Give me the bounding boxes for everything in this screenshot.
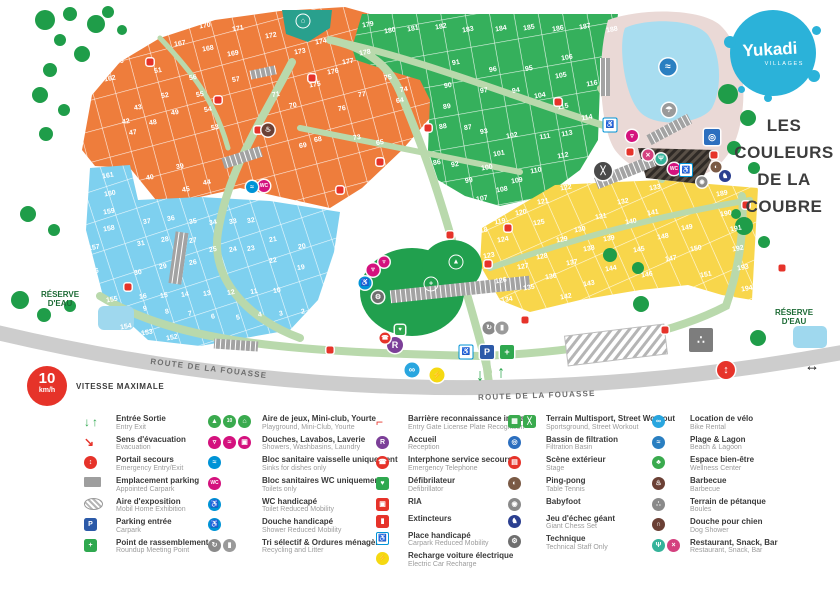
aire-de-jeux-text: Aire de jeux, Mini-club, YourtePlaygroun… (262, 414, 376, 432)
accueil-icon: R (376, 435, 402, 449)
defibrilateur-text: DéfibrilateurDefibrillator (408, 476, 455, 494)
scene-exterieur-icon: ▤ (508, 455, 540, 469)
ria-title: RIA (408, 497, 422, 507)
legend-item-defibrilateur: ♥DéfibrilateurDefibrillator (376, 476, 527, 494)
legend-item-wc-handicape: ♿WC handicapéToilet Reduced Mobility (208, 497, 398, 515)
scene-exterieur-text: Scène extérieurStage (546, 455, 606, 473)
exit-arrow-icon: ↑ (497, 364, 506, 381)
douche-chien-title: Douche pour chien (690, 517, 762, 527)
barriere-immat-icon: ⌐ (376, 414, 402, 428)
plot-number-green: 182 (435, 23, 448, 32)
reserve-eau-label-left: RÉSERVE D'EAU (34, 290, 86, 308)
plot-number-blue: 27 (189, 237, 198, 245)
terrain-petanque-icon: ∴ (652, 497, 684, 511)
reduced-mobility-icon: ♿ (603, 118, 618, 133)
location-velo-subtitle: Bike Rental (690, 424, 753, 432)
plot-number-blue: 9 (142, 305, 147, 313)
plot-number-green: 187 (579, 23, 592, 32)
fire-extinguisher-marker (447, 232, 454, 239)
plot-number-green: 95 (525, 65, 534, 73)
legend-item-ria: ▣RIA (376, 497, 527, 511)
dishes-sink-icon: ≈ (246, 181, 258, 193)
parking-entree-glyph: P (84, 518, 97, 531)
aire-de-jeux-glyph: ⌂ (238, 415, 251, 428)
ria-text: RIA (408, 497, 422, 507)
plot-number-yellow: 191 (730, 225, 743, 234)
plot-number-blue: 12 (227, 289, 236, 297)
bassin-filtration-icon: ◎ (508, 435, 540, 449)
logo-subtitle: VILLAGES (724, 61, 804, 67)
plot-number-orange: 40 (146, 174, 155, 182)
parking-entree-text: Parking entréeCarpark (116, 517, 172, 535)
fire-extinguisher-marker (627, 149, 634, 156)
plage-lagon-text: Plage & LagonBeach & Lagoon (690, 435, 746, 453)
ria-glyph: ▣ (376, 498, 389, 511)
fire-extinguisher-marker (555, 99, 562, 106)
plot-number-blue: 34 (209, 219, 218, 227)
speed-unit: km/h (27, 387, 67, 395)
plot-number-yellow: 139 (603, 235, 616, 244)
plot-number-green: 105 (555, 72, 568, 81)
plot-number-green: 116 (586, 80, 598, 89)
portail-secours-subtitle: Emergency Entry/Exit (116, 465, 183, 473)
legend-item-location-velo: ∞Location de véloBike Rental (652, 414, 778, 432)
legend-item-babyfoot: ◉Babyfoot (508, 497, 675, 511)
accueil-text: AccueilReception (408, 435, 440, 453)
emplacement-parking-subtitle: Appointed Carpark (116, 486, 199, 494)
plot-number-blue: 16 (139, 293, 148, 301)
filtration-basin-icon: ◎ (704, 129, 720, 145)
douches-lavabos-laverie-glyph: ▣ (238, 436, 251, 449)
plot-number-orange: 52 (161, 92, 170, 100)
plot-number-green: 188 (606, 26, 619, 35)
plot-number-blue: 20 (298, 243, 307, 251)
map-title-line: DE LA (730, 166, 838, 193)
legend-item-portail-secours: ↕Portail secoursEmergency Entry/Exit (84, 455, 208, 473)
plot-number-green: 101 (493, 150, 506, 159)
legend-item-espace-bien-etre: ♣Espace bien-êtreWellness Center (652, 455, 778, 473)
plot-number-orange: 167 (174, 40, 187, 49)
aire-exposition-glyph (84, 498, 103, 510)
barbecue-icon: ♨ (262, 124, 275, 137)
plot-number-orange: 51 (154, 67, 163, 75)
wc-handicape-title: WC handicapé (262, 497, 334, 507)
plot-number-blue: 19 (297, 264, 306, 272)
ping-pong-text: Ping-pongTable Tennis (546, 476, 586, 494)
carpark-entrance-icon: P (480, 345, 494, 359)
plot-number-orange: 71 (272, 91, 281, 99)
technical-icon: ⚙ (372, 291, 384, 303)
plot-number-orange: 75 (384, 74, 393, 82)
legend-item-accueil: RAccueilReception (376, 435, 527, 453)
jeu-echec-geant-text: Jeu d'échec géantGiant Chess Set (546, 514, 615, 532)
interphone-secours-icon: ☎ (376, 455, 402, 469)
plot-number-orange: 178 (359, 49, 372, 58)
babyfoot-title: Babyfoot (546, 497, 581, 507)
plot-number-blue: 1 (322, 306, 327, 314)
tri-selectif-title: Tri sélectif & Ordures ménagères (262, 538, 387, 548)
portail-secours-icon: ↕ (84, 455, 110, 469)
restaurant-icon: Ψ (656, 154, 667, 165)
plot-number-yellow: 193 (737, 264, 750, 273)
aire-de-jeux-icon: ▲10⌂ (208, 414, 256, 428)
terrain-petanque-text: Terrain de pétanqueBoules (690, 497, 766, 515)
plot-number-blue: 10 (273, 287, 282, 295)
extincteurs-glyph: ▮ (376, 515, 389, 528)
plot-number-orange: 168 (202, 45, 215, 54)
terrain-multisport-glyph: ▦ (508, 415, 521, 428)
restaurant-snack-bar-icon: Ψ× (652, 538, 684, 552)
plot-number-orange: 177 (342, 58, 355, 67)
legend-column-3: ⌐Barrière reconnaissance immatEntry Gate… (376, 414, 527, 569)
defibrilateur-glyph: ♥ (376, 477, 389, 490)
entree-sortie-icon: ↓↑ (84, 414, 110, 428)
parking-entree-subtitle: Carpark (116, 527, 172, 535)
legend-item-point-rassemblement: +Point de rassemblementRoundup Meeting P… (84, 538, 208, 556)
ev-charge-icon: ⚡ (430, 368, 445, 383)
restaurant-snack-bar-title: Restaurant, Snack, Bar (690, 538, 778, 548)
legend-item-restaurant-snack-bar: Ψ×Restaurant, Snack, BarRestaurant, Snac… (652, 538, 778, 556)
location-velo-glyph: ∞ (652, 415, 665, 428)
fire-extinguisher-marker (125, 284, 132, 291)
plot-number-orange: 44 (203, 179, 212, 187)
espace-bien-etre-title: Espace bien-être (690, 455, 754, 465)
plot-number-green: 180 (384, 27, 397, 36)
legend-item-entree-sortie: ↓↑Entrée SortieEntry Exit (84, 414, 208, 432)
two-way-arrow-icon: ↔ (805, 359, 820, 374)
wc-handicape-icon: ♿ (208, 497, 256, 511)
plot-number-orange: 162 (104, 75, 117, 84)
legend-item-aire-exposition: Aire d'expositionMobil Home Exhibition (84, 497, 208, 515)
plot-number-green: 88 (439, 123, 448, 131)
plot-number-green: 181 (407, 25, 420, 34)
emplacement-parking-glyph (84, 477, 101, 487)
plot-number-blue: 154 (120, 323, 133, 332)
point-rassemblement-glyph: + (84, 539, 97, 552)
aire-exposition-title: Aire d'exposition (116, 497, 186, 507)
plot-number-blue: 7 (187, 310, 192, 318)
ping-pong-icon: ◐ (711, 162, 722, 173)
plot-number-blue: 11 (250, 288, 259, 296)
douche-chien-text: Douche pour chienDog Shower (690, 517, 762, 535)
plot-number-orange: 57 (232, 76, 241, 84)
showers-icon: ▿ (626, 130, 638, 142)
plot-number-orange: 42 (122, 118, 131, 126)
legend-column-5: ∞Location de véloBike Rental≈Plage & Lag… (652, 414, 778, 555)
ping-pong-title: Ping-pong (546, 476, 586, 486)
plot-number-orange: 169 (227, 50, 240, 59)
bloc-wc-subtitle: Toilets only (262, 486, 382, 494)
scene-exterieur-title: Scène extérieur (546, 455, 606, 465)
technique-text: TechniqueTechnical Staff Only (546, 534, 608, 552)
aire-exposition-text: Aire d'expositionMobil Home Exhibition (116, 497, 186, 515)
legend-item-bassin-filtration: ◎Bassin de filtrationFiltration Basin (508, 435, 675, 453)
legend-column-1: ↓↑Entrée SortieEntry Exit↘Sens d'évacuat… (84, 414, 208, 555)
aire-de-jeux-glyph: ▲ (208, 415, 221, 428)
bloc-vaisselle-icon: ≈ (208, 455, 256, 469)
babyfoot-glyph: ◉ (508, 498, 521, 511)
legend-item-barbecue: ♨BarbecueBarbecue (652, 476, 778, 494)
interphone-secours-text: Interphone service secoursEmergency Tele… (408, 455, 512, 473)
place-handicape-title: Place handicapé (408, 531, 489, 541)
plot-number-yellow: 144 (605, 265, 618, 274)
entree-sortie-glyph: ↑ (92, 415, 98, 428)
fire-extinguisher-marker (309, 75, 316, 82)
douche-chien-subtitle: Dog Shower (690, 527, 762, 535)
plot-number-orange: 173 (294, 48, 307, 57)
portail-secours-glyph: ↕ (84, 456, 97, 469)
plot-number-blue: 26 (189, 259, 198, 267)
logo-splat (738, 86, 745, 93)
barbecue-icon: ♨ (652, 476, 684, 490)
plot-number-yellow: 145 (633, 246, 646, 255)
portail-secours-title: Portail secours (116, 455, 183, 465)
location-velo-icon: ∞ (652, 414, 684, 428)
aire-de-jeux-subtitle: Playground, Mini-Club, Yourte (262, 424, 376, 432)
plot-number-yellow: 134 (501, 296, 514, 305)
plot-number-yellow: 150 (690, 245, 703, 254)
plot-number-yellow: 141 (647, 209, 660, 218)
legend-item-interphone-secours: ☎Interphone service secoursEmergency Tel… (376, 455, 527, 473)
plot-number-green: 109 (511, 177, 524, 186)
place-handicape-text: Place handicapéCarpark Reduced Mobility (408, 531, 489, 549)
plot-number-yellow: 194 (741, 285, 754, 294)
place-handicape-glyph: ♿ (376, 532, 389, 545)
plot-number-green: 91 (452, 59, 461, 67)
scene-exterieur-subtitle: Stage (546, 465, 606, 473)
plot-number-green: 179 (362, 21, 375, 30)
plot-number-yellow: 121 (537, 198, 550, 207)
fire-extinguisher-marker (255, 127, 262, 134)
plot-number-yellow: 132 (617, 198, 630, 207)
plot-number-green: 97 (480, 87, 489, 95)
plot-number-orange: 166 (167, 19, 180, 28)
ping-pong-glyph: ◐ (508, 477, 521, 490)
litter-icon: ▮ (496, 322, 509, 335)
sens-evacuation-title: Sens d'évacuation (116, 435, 186, 445)
fire-extinguisher-marker (377, 159, 384, 166)
plot-number-yellow: 149 (681, 224, 694, 233)
restaurant-snack-bar-subtitle: Restaurant, Snack, Bar (690, 547, 778, 555)
place-handicape-subtitle: Carpark Reduced Mobility (408, 540, 489, 548)
plot-number-yellow: 136 (545, 273, 558, 282)
terrain-petanque-title: Terrain de pétanque (690, 497, 766, 507)
plot-number-green: 104 (534, 92, 547, 101)
emergency-gate-icon: ↕ (717, 361, 735, 379)
plot-number-orange: 164 (119, 41, 132, 50)
sens-evacuation-subtitle: Evacuation (116, 444, 186, 452)
plage-lagon-subtitle: Beach & Lagoon (690, 444, 746, 452)
plot-number-orange: 69 (299, 142, 308, 150)
espace-bien-etre-glyph: ♣ (652, 456, 665, 469)
plot-number-blue: 6 (210, 313, 215, 321)
plot-number-green: 113 (561, 130, 573, 139)
plot-number-blue: 31 (137, 240, 146, 248)
emplacement-parking-title: Emplacement parking (116, 476, 199, 486)
plot-number-blue: 24 (229, 246, 238, 254)
plot-number-blue: 32 (247, 217, 256, 225)
showers-icon: ▿ (367, 264, 380, 277)
babyfoot-icon: ◉ (697, 177, 708, 188)
plot-number-orange: 73 (353, 134, 362, 142)
plot-number-orange: 53 (211, 124, 220, 132)
scene-exterieur-glyph: ▤ (508, 456, 521, 469)
sens-evacuation-text: Sens d'évacuationEvacuation (116, 435, 186, 453)
plot-number-orange: 48 (149, 119, 158, 127)
bloc-wc-glyph: WC (208, 477, 221, 490)
legend-item-douche-handicape: ♿Douche handicapéShower Reduced Mobility (208, 517, 398, 535)
douche-chien-icon: ∩ (652, 517, 684, 531)
sanitary-wc-icon: WC (258, 180, 270, 192)
plot-number-green: 111 (539, 133, 551, 142)
babyfoot-text: Babyfoot (546, 497, 581, 507)
fire-extinguisher-marker (147, 59, 154, 66)
map-title-line: COUBRE (730, 193, 838, 220)
plot-number-yellow: 131 (595, 213, 608, 222)
plot-number-orange: 170 (199, 22, 212, 31)
douches-lavabos-laverie-icon: ▿≈▣ (208, 435, 256, 449)
barbecue-glyph: ♨ (652, 477, 665, 490)
meeting-point-icon: + (500, 345, 514, 359)
douches-lavabos-laverie-glyph: ▿ (208, 436, 221, 449)
technique-icon: ⚙ (508, 534, 540, 548)
map-title: LESCOULEURSDE LACOUBRE (730, 112, 838, 220)
plot-number-yellow: 138 (583, 245, 596, 254)
plot-number-orange: 174 (315, 38, 328, 47)
legend-item-sens-evacuation: ↘Sens d'évacuationEvacuation (84, 435, 208, 453)
plot-number-yellow: 137 (566, 259, 579, 268)
legend-item-extincteurs: ▮Extincteurs (376, 514, 527, 528)
plot-number-orange: 171 (232, 25, 245, 34)
plot-number-yellow: 151 (700, 271, 713, 280)
plot-number-blue: 159 (103, 208, 116, 217)
emplacement-parking-text: Emplacement parkingAppointed Carpark (116, 476, 199, 494)
plot-number-green: 102 (506, 132, 519, 141)
point-rassemblement-text: Point de rassemblementRoundup Meeting Po… (116, 538, 208, 556)
plot-number-green: 94 (512, 87, 521, 95)
legend-item-aire-de-jeux: ▲10⌂Aire de jeux, Mini-club, YourtePlayg… (208, 414, 398, 432)
tri-selectif-glyph: ▮ (223, 539, 236, 552)
plot-number-yellow: 122 (560, 184, 573, 193)
playground-icon: ▲ (449, 255, 464, 270)
plot-number-orange: 55 (196, 91, 205, 99)
defibrilateur-subtitle: Defibrillator (408, 486, 455, 494)
legend-item-plage-lagon: ≈Plage & LagonBeach & Lagoon (652, 435, 778, 453)
speed-value: 10 (27, 371, 67, 387)
terrain-petanque-subtitle: Boules (690, 506, 766, 514)
ping-pong-subtitle: Table Tennis (546, 486, 586, 494)
plot-number-green: 86 (433, 159, 442, 167)
espace-bien-etre-subtitle: Wellness Center (690, 465, 754, 473)
plot-number-green: 114 (581, 114, 593, 123)
plot-number-orange: 54 (204, 106, 213, 114)
legend: ↓↑Entrée SortieEntry Exit↘Sens d'évacuat… (0, 408, 840, 594)
legend-item-place-handicape: ♿Place handicapéCarpark Reduced Mobility (376, 531, 527, 549)
recharge-electrique-glyph: ⚡ (376, 552, 389, 565)
legend-item-emplacement-parking: Emplacement parkingAppointed Carpark (84, 476, 208, 494)
plot-number-green: 93 (480, 128, 489, 136)
plage-lagon-icon: ≈ (652, 435, 684, 449)
plot-number-yellow: 120 (515, 209, 528, 218)
terrain-multisport-glyph: ╳ (523, 415, 536, 428)
legend-item-bloc-vaisselle: ≈Bloc sanitaire vaisselle uniquementSink… (208, 455, 398, 473)
sens-evacuation-icon: ↘ (84, 435, 110, 449)
recharge-electrique-title: Recharge voiture électrique (408, 551, 513, 561)
snack-bar-icon: × (643, 150, 654, 161)
fire-extinguisher-marker (425, 125, 432, 132)
fire-extinguisher-marker (485, 261, 492, 268)
plot-number-blue: 14 (181, 291, 190, 299)
plot-number-blue: 152 (166, 334, 179, 343)
location-velo-title: Location de vélo (690, 414, 753, 424)
plot-number-yellow: 124 (497, 236, 510, 245)
plot-number-green: 112 (557, 152, 569, 161)
plot-number-green: 96 (489, 66, 498, 74)
plot-number-yellow: 146 (641, 271, 654, 280)
plot-number-orange: 65 (376, 139, 385, 147)
logo-splat (764, 94, 772, 102)
defibrilateur-title: Défibrilateur (408, 476, 455, 486)
plot-number-orange: 76 (338, 105, 347, 113)
bloc-wc-icon: WC (208, 476, 256, 490)
plot-number-blue: 21 (269, 236, 278, 244)
legend-item-jeu-echec-geant: ♞Jeu d'échec géantGiant Chess Set (508, 514, 675, 532)
plot-number-yellow: 140 (625, 218, 638, 227)
plot-number-blue: 5 (235, 314, 240, 322)
carpark-reduced-mobility-icon: ♿ (459, 345, 474, 360)
place-handicape-icon: ♿ (376, 531, 402, 545)
aire-exposition-icon (84, 497, 110, 510)
plot-number-green: 185 (523, 24, 536, 33)
plot-number-yellow: 129 (556, 236, 569, 245)
jeu-echec-geant-icon: ♞ (508, 514, 540, 528)
street-workout-icon: ╳ (594, 162, 612, 180)
yukadi-logo: Yukadi VILLAGES (724, 6, 824, 111)
plot-number-orange: 176 (327, 68, 340, 77)
plot-number-blue: 4 (257, 311, 262, 319)
plot-number-orange: 70 (289, 102, 298, 110)
plage-lagon-glyph: ≈ (652, 436, 665, 449)
plot-number-blue: 22 (269, 257, 278, 265)
fire-extinguisher-marker (522, 317, 529, 324)
plot-number-yellow: 118 (476, 227, 488, 236)
recharge-electrique-subtitle: Electric Car Recharge (408, 561, 513, 569)
plot-number-blue: 13 (203, 290, 212, 298)
fire-extinguisher-marker (337, 187, 344, 194)
technique-glyph: ⚙ (508, 535, 521, 548)
aire-de-jeux-glyph: 10 (223, 415, 236, 428)
douche-handicape-glyph: ♿ (208, 518, 221, 531)
plot-number-green: 107 (476, 195, 489, 204)
sens-evacuation-glyph: ↘ (84, 436, 94, 449)
point-rassemblement-title: Point de rassemblement (116, 538, 208, 548)
interphone-secours-glyph: ☎ (376, 456, 389, 469)
plot-number-blue: 156 (87, 268, 100, 277)
barbecue-title: Barbecue (690, 476, 726, 486)
emergency-telephone-icon: ☎ (380, 333, 391, 344)
bassin-filtration-text: Bassin de filtrationFiltration Basin (546, 435, 618, 453)
plage-lagon-title: Plage & Lagon (690, 435, 746, 445)
douche-handicape-subtitle: Shower Reduced Mobility (262, 527, 341, 535)
aire-exposition-subtitle: Mobil Home Exhibition (116, 506, 186, 514)
barbecue-text: BarbecueBarbecue (690, 476, 726, 494)
multisport-icon: + (424, 277, 439, 292)
legend-column-2: ▲10⌂Aire de jeux, Mini-club, YourtePlayg… (208, 414, 398, 555)
bassin-filtration-glyph: ◎ (508, 436, 521, 449)
portail-secours-text: Portail secoursEmergency Entry/Exit (116, 455, 183, 473)
legend-item-bloc-wc: WCBloc sanitaires WC uniquementToilets o… (208, 476, 398, 494)
legend-item-tri-selectif: ↻▮Tri sélectif & Ordures ménagèresRecycl… (208, 538, 398, 556)
